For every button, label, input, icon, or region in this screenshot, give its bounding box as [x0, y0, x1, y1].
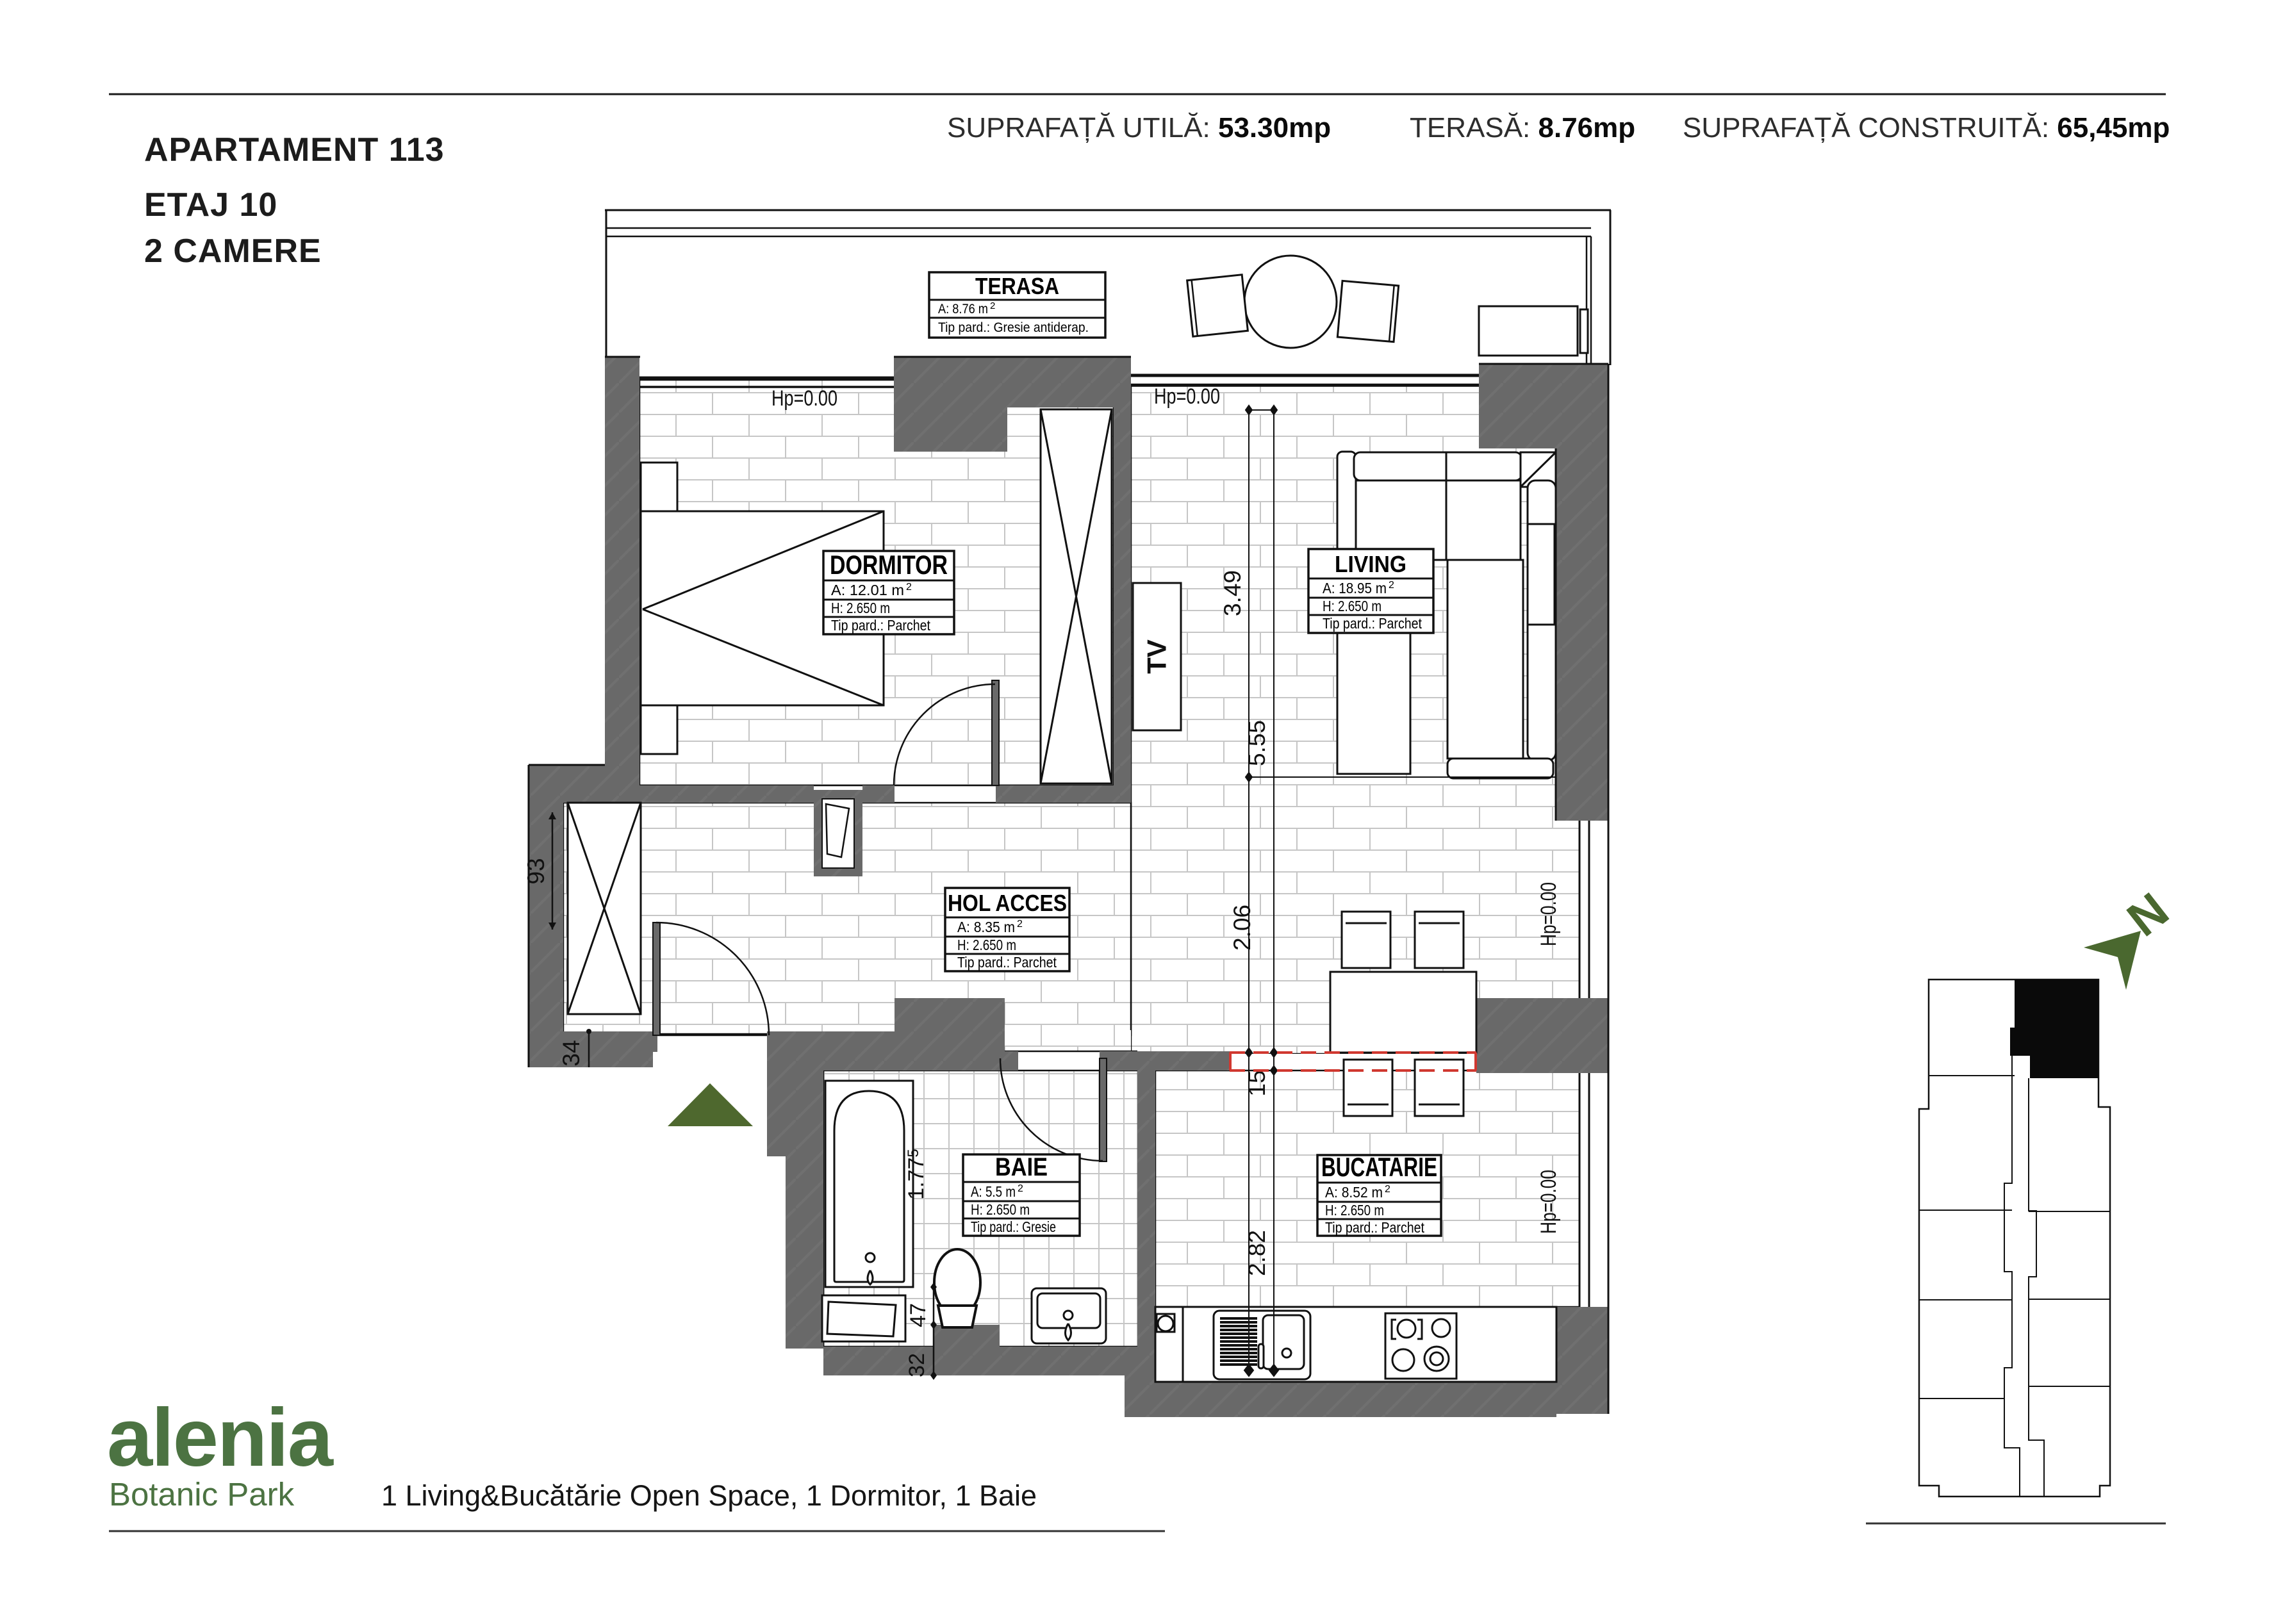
svg-text:LIVING: LIVING: [1335, 551, 1406, 577]
svg-text:Tip pard.: Gresie antiderap.: Tip pard.: Gresie antiderap.: [938, 320, 1089, 335]
svg-text:Botanic Park: Botanic Park: [109, 1476, 295, 1513]
svg-text:2.06: 2.06: [1229, 905, 1255, 951]
svg-text:alenia: alenia: [107, 1392, 334, 1484]
svg-text:ETAJ 10: ETAJ 10: [144, 186, 277, 224]
svg-text:Hp=0.00: Hp=0.00: [1154, 384, 1220, 409]
svg-text:H: 2.650 m: H: 2.650 m: [971, 1201, 1030, 1218]
svg-text:2: 2: [990, 300, 995, 311]
svg-text:3.49: 3.49: [1219, 570, 1246, 616]
svg-text:2: 2: [1385, 1184, 1390, 1195]
svg-text:93: 93: [523, 858, 549, 884]
svg-text:APARTAMENT 113: APARTAMENT 113: [144, 131, 445, 168]
svg-text:15: 15: [1244, 1070, 1270, 1096]
svg-text:BUCATARIE: BUCATARIE: [1321, 1152, 1437, 1182]
svg-text:2: 2: [906, 582, 912, 593]
svg-text:Hp=0.00: Hp=0.00: [1537, 882, 1561, 946]
svg-text:2: 2: [1017, 919, 1023, 930]
svg-text:TV: TV: [1142, 639, 1172, 674]
svg-text:5.55: 5.55: [1244, 720, 1270, 766]
svg-text:Tip pard.: Parchet: Tip pard.: Parchet: [957, 954, 1057, 971]
svg-text:Tip pard.: Parchet: Tip pard.: Parchet: [831, 617, 931, 634]
svg-text:2.82: 2.82: [1244, 1230, 1270, 1276]
svg-text:A: 18.95 m: A: 18.95 m: [1323, 580, 1387, 596]
svg-text:A: 5.5 m: A: 5.5 m: [971, 1183, 1016, 1200]
svg-text:Tip pard.: Parchet: Tip pard.: Parchet: [1325, 1219, 1425, 1236]
svg-text:H: 2.650 m: H: 2.650 m: [1323, 598, 1381, 614]
svg-text:1 Living&Bucătărie Open Space,: 1 Living&Bucătărie Open Space, 1 Dormito…: [381, 1479, 1037, 1512]
svg-text:34: 34: [558, 1040, 584, 1066]
svg-text:Hp=0.00: Hp=0.00: [1537, 1170, 1561, 1234]
svg-text:A: 12.01 m: A: 12.01 m: [831, 582, 904, 598]
svg-text:BAIE: BAIE: [995, 1153, 1048, 1181]
svg-text:DORMITOR: DORMITOR: [830, 550, 948, 580]
svg-text:A: 8.35 m: A: 8.35 m: [957, 919, 1015, 935]
svg-text:32: 32: [905, 1353, 929, 1377]
svg-text:H: 2.650 m: H: 2.650 m: [1325, 1202, 1384, 1218]
svg-text:HOL ACCES: HOL ACCES: [948, 890, 1067, 916]
svg-text:A: 8.52 m: A: 8.52 m: [1325, 1184, 1383, 1201]
svg-text:H: 2.650 m: H: 2.650 m: [957, 937, 1016, 953]
svg-text:Tip pard.: Gresie: Tip pard.: Gresie: [971, 1218, 1056, 1235]
svg-text:Hp=0.00: Hp=0.00: [771, 386, 837, 411]
svg-text:2: 2: [1389, 580, 1394, 591]
svg-text:2 CAMERE: 2 CAMERE: [144, 233, 322, 270]
svg-text:H: 2.650 m: H: 2.650 m: [831, 600, 890, 616]
svg-text:TERASĂ: 8.76mp: TERASĂ: 8.76mp: [1410, 112, 1635, 144]
svg-text:2: 2: [1018, 1183, 1023, 1194]
svg-text:47: 47: [906, 1303, 930, 1327]
svg-text:TERASA: TERASA: [975, 273, 1059, 299]
svg-text:A: 8.76 m: A: 8.76 m: [938, 302, 988, 316]
svg-text:Tip pard.: Parchet: Tip pard.: Parchet: [1323, 615, 1422, 632]
svg-text:SUPRAFAȚĂ UTILĂ: 53.30mp: SUPRAFAȚĂ UTILĂ: 53.30mp: [947, 112, 1331, 144]
svg-text:SUPRAFAȚĂ CONSTRUITĂ: 65,45mp: SUPRAFAȚĂ CONSTRUITĂ: 65,45mp: [1683, 112, 2170, 144]
